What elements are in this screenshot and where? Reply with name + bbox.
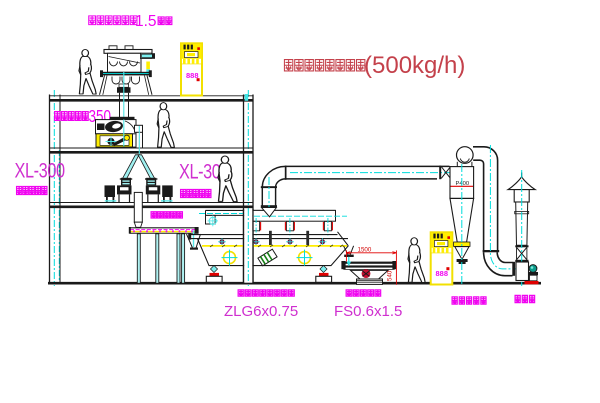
svg-text:1.5: 1.5	[135, 13, 157, 30]
svg-text:FS0.6x1.5: FS0.6x1.5	[334, 303, 402, 320]
svg-text:XL-300: XL-300	[15, 159, 65, 182]
svg-text:888: 888	[436, 269, 449, 278]
svg-text:540: 540	[387, 270, 394, 281]
svg-text:(500kg/h): (500kg/h)	[364, 52, 465, 79]
svg-text:1500: 1500	[358, 247, 372, 254]
svg-text:ZLG6x0.75: ZLG6x0.75	[224, 303, 298, 320]
